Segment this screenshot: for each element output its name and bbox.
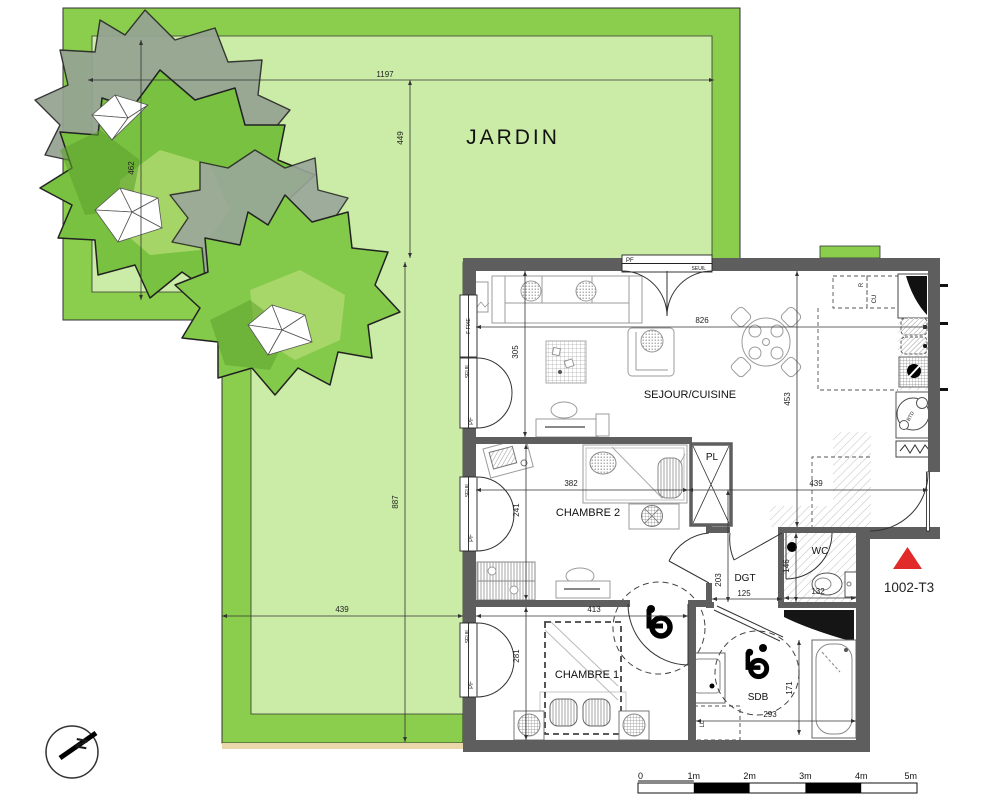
window-label-pf: PF [469,681,475,689]
pillow-left [550,699,577,726]
dim-305: 305 [511,345,520,359]
sofa [492,276,642,323]
pillow-right [583,699,610,726]
dim-dgt-width: 125 [737,589,751,598]
cooktop [899,357,929,387]
dim-garden-439: 439 [335,605,349,614]
hedge-strip [820,246,880,258]
radiator-entry [896,441,933,457]
window-label-seuil: SEUIL [692,266,707,272]
armchair [628,328,674,376]
soil-strip [222,743,463,749]
room-label-pl: PL [706,452,719,463]
dim-sdb-height: 171 [785,681,794,695]
window-label-seuil: SEUIL [465,629,471,644]
dim-wc-width: 132 [811,587,825,596]
dim-garden-887: 887 [391,495,400,509]
dim-wc-height: 146 [782,559,791,573]
unit-triangle-icon [893,547,922,569]
scale-label-3m: 3m [799,771,812,781]
dim-sejour-width: 826 [695,316,709,325]
drain-symbol-sdb [759,644,767,652]
bedside-fan-unit [629,504,679,529]
window-label-pf: PF [626,258,634,264]
dim-garden-462: 462 [127,161,136,175]
window-label-seuil: SEUIL [465,364,471,379]
dim-garden-449: 449 [396,131,405,145]
fridge-label: R [859,282,865,287]
dim-chambre2-height: 241 [512,503,521,517]
window-sejour-pf: SEUIL PF [460,358,477,428]
closet-pl: PL [691,444,731,525]
window-chambre1-pf: SEUIL PF [460,623,477,697]
room-label-sejour: SEJOUR/CUISINE [644,389,736,401]
north-arrow: N [46,726,98,778]
room-label-dgt: DGT [734,573,755,584]
water-heater-btd: BTD [896,392,932,438]
dim-garden-width: 1197 [376,70,394,79]
rug [546,341,586,383]
scale-label-2m: 2m [743,771,756,781]
window-chambre2-pf: SEUIL PF [460,477,477,551]
drain-symbol-wc [787,542,797,552]
garden-label: JARDIN [466,126,560,149]
dim-chambre2-width: 382 [564,479,578,488]
room-label-chambre2: CHAMBRE 2 [556,507,620,519]
scale-label-4m: 4m [855,771,868,781]
room-label-wc: WC [812,546,829,557]
floor-plan-page: 1197 449 462 887 439 JARDIN [0,0,1000,800]
window-label-pf: PF [469,534,475,542]
dim-chambre1-height: 281 [512,649,521,663]
scale-bar: 0 1m 2m 3m 4m 5m [638,771,917,793]
nightstand-left [514,711,544,740]
window-fixed: F FIXE [460,295,477,357]
fridge-corner-unit [898,274,929,318]
unit-marker: 1002-T3 [884,547,934,595]
window-label-ffixe: F FIXE [466,318,472,334]
nightstand-right [619,711,649,740]
kitchen-label: CU [872,295,878,304]
window-top-pf: PF SEUIL [622,255,712,272]
unit-label: 1002-T3 [884,580,934,595]
bathtub [812,640,856,738]
dim-sejour-height: 453 [783,392,792,406]
dim-sdb-width: 293 [763,710,777,719]
dim-dgt-height: 203 [714,573,723,587]
scale-label-5m: 5m [904,771,917,781]
room-label-sdb: SDB [748,692,769,703]
window-label-pf: PF [469,417,475,425]
window-label-seuil: SEUIL [465,483,471,498]
floor-plan-drawing: 1197 449 462 887 439 JARDIN [0,0,1000,800]
scale-label-0: 0 [638,771,643,781]
bed-single [583,445,687,503]
dim-chambre1-width: 413 [587,605,601,614]
dim-entry-width: 439 [809,479,823,488]
room-label-chambre1: CHAMBRE 1 [555,669,619,681]
scale-label-1m: 1m [688,771,701,781]
